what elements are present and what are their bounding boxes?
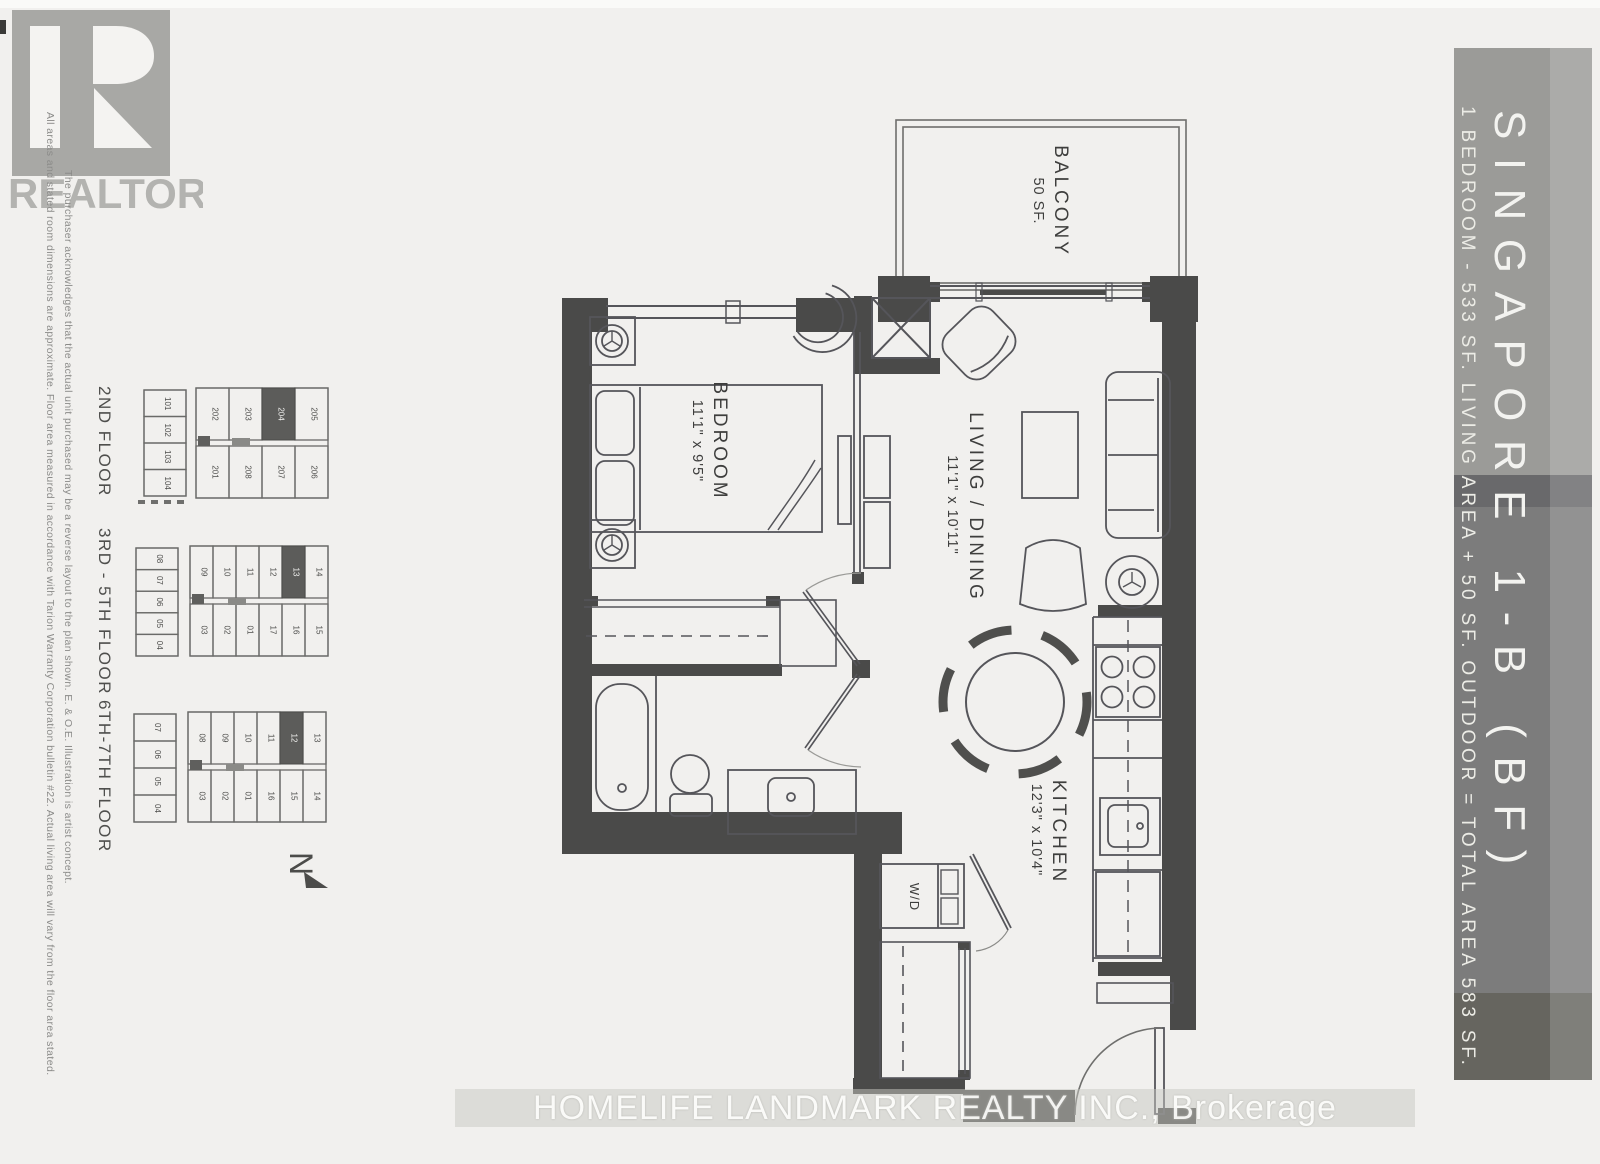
tv-console-lower [864,502,890,568]
keyplan-6th-7th-floor: 07 06 05 04 08 09 10 11 12 13 03 02 01 1… [130,706,330,828]
unit-number: 17 [269,626,278,635]
bedroom-label: BEDROOM [709,381,730,500]
floorplan-sheet: REALTOR® All areas and stated room dimen… [0,0,1600,1164]
dining-table [966,653,1064,751]
living-label: LIVING / DINING [965,412,986,602]
unit-summary: 1 BEDROOM - 533 SF. LIVING AREA + 50 SF.… [1456,106,1478,1069]
unit-number: 03 [198,792,207,801]
realtor-logo: REALTOR® [8,6,203,221]
bedroom-closet [584,600,836,666]
unit-number: 208 [244,465,253,479]
unit-number: 206 [310,465,319,479]
unit-number: 05 [153,777,162,786]
keyplan-3rd-5th-floor: 08 07 06 05 04 09 10 11 12 13 14 03 02 0… [132,540,332,662]
unit-number: 16 [267,792,276,801]
unit-number: 205 [310,407,319,421]
kitchen-counter [1093,617,1162,962]
unit-number: 10 [244,734,253,743]
hall-closet [880,942,970,1078]
unit-number: 05 [155,619,164,628]
sink-bath [768,778,814,816]
unit-number: 15 [290,792,299,801]
laundry-closet [880,854,1011,951]
keyplan-label-6th-7th-floor: 6TH-7TH FLOOR [94,700,114,853]
lamp-side-table [1106,556,1158,608]
unit-number: 104 [163,477,172,491]
dining-chairs [943,630,1087,774]
tv-console-upper [864,436,890,498]
unit-number: 207 [277,465,286,479]
north-arrow-icon: N [278,840,348,900]
coffee-table [1022,412,1078,498]
balcony-area-label: 50 SF. [1030,177,1046,224]
unit-number: 10 [223,568,232,577]
toilet [671,755,709,793]
living-dims-label: 11'1" x 10'11" [944,455,960,554]
entry-bench [1097,983,1173,1003]
unit-number: 04 [153,804,162,813]
unit-number: 12 [269,568,278,577]
unit-number: 09 [221,734,230,743]
unit-number: 14 [313,792,322,801]
kitchen-dims-label: 12'3" x 10'4" [1028,784,1044,877]
keyplan-label-3rd-5th-floor: 3RD - 5TH FLOOR [94,528,114,695]
armchair [936,300,1022,386]
unit-number: 203 [244,407,253,421]
unit-number: 09 [200,568,209,577]
kitchen-label: KITCHEN [1048,780,1069,884]
unit-number: 11 [246,568,255,577]
brokerage-watermark-text: HOMELIFE LANDMARK REALTY INC., Brokerage [533,1089,1337,1128]
floorplan-drawing: BALCONY 50 SF. [540,100,1220,1160]
unit-number: 202 [211,407,220,421]
disclaimer-line-2: The purchaser acknowledges that the actu… [62,170,74,884]
disclaimer-line-1: All areas and stated room dimensions are… [44,112,56,1076]
unit-number: 103 [163,450,172,464]
unit-number: 07 [153,723,162,732]
keyplan-2nd-floor: 101 102 103 104 202 203 204 205 201 208 … [140,384,330,502]
unit-number: 101 [163,397,172,411]
unit-number: 06 [153,750,162,759]
unit-number: 02 [223,626,232,635]
balcony-label: BALCONY [1050,145,1071,257]
keyplan-label-2nd-floor: 2ND FLOOR [94,386,114,497]
brokerage-watermark: HOMELIFE LANDMARK REALTY INC., Brokerage [455,1089,1415,1127]
unit-number: 201 [211,465,220,479]
unit-number: 07 [155,576,164,585]
unit-number-highlighted: 13 [292,568,301,577]
unit-number: 04 [155,641,164,650]
unit-number: 06 [155,598,164,607]
unit-number: 13 [313,734,322,743]
keyplan-separator-dashes [138,498,190,506]
unit-number: 03 [200,626,209,635]
unit-number-highlighted: 204 [277,407,286,421]
laundry-label: W/D [907,883,922,911]
banner-light-strip [1550,48,1592,1080]
unit-title-banner: 1 BEDROOM - 533 SF. LIVING AREA + 50 SF.… [1454,48,1592,1080]
accent-chair [1020,540,1086,611]
unit-number: 01 [246,626,255,635]
bedroom-dresser [838,436,851,524]
unit-number: 02 [221,792,230,801]
sofa [1106,372,1170,538]
unit-number: 11 [267,734,276,743]
unit-number: 08 [198,734,207,743]
north-letter: N [283,852,319,875]
unit-name: SINGAPORE 1-B (BF) [1484,110,1534,883]
bathtub [596,684,648,810]
scan-artifact [0,20,6,34]
unit-number: 14 [315,568,324,577]
unit-number: 01 [244,792,253,801]
unit-number: 08 [155,554,164,563]
realtor-wordmark: REALTOR® [8,170,203,217]
bedroom-dims-label: 11'1" x 9'5" [689,400,705,482]
unit-number-highlighted: 12 [290,734,299,743]
unit-number: 16 [292,626,301,635]
unit-number: 102 [163,424,172,438]
unit-number: 15 [315,626,324,635]
